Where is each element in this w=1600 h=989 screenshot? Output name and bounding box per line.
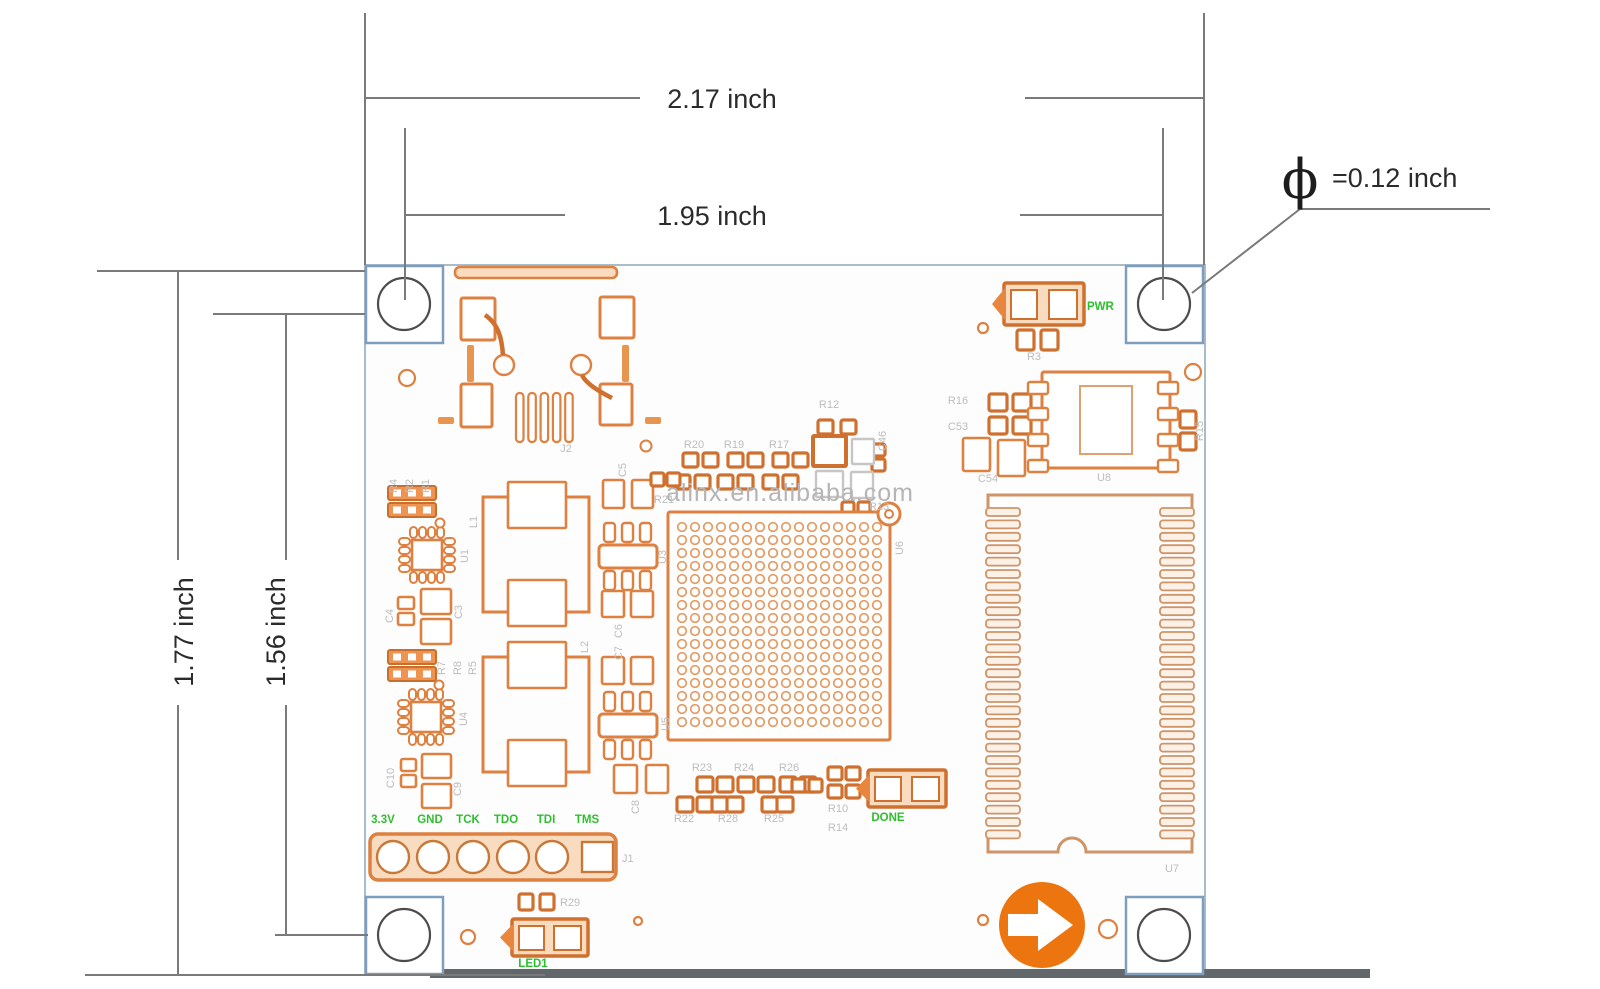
refdes-r12: R12 <box>819 399 839 411</box>
refdes-l2: L2 <box>579 641 591 653</box>
refdes-r16: R16 <box>948 395 968 407</box>
refdes-u6: U6 <box>894 541 906 555</box>
mounting-hole-2 <box>1126 266 1203 343</box>
pcb-dimension-drawing: alinx.en.alibaba.com 2.17 inch 1.95 inch… <box>0 0 1600 989</box>
refdes-c46: C46 <box>877 431 889 451</box>
refdes-r26: R26 <box>779 762 799 774</box>
refdes-l1: L1 <box>468 516 480 528</box>
refdes-u8: U8 <box>1097 472 1111 484</box>
mounting-hole-4 <box>1126 897 1203 974</box>
refdes-r5: R5 <box>467 661 479 675</box>
hole-diameter-value: =0.12 inch <box>1332 163 1457 193</box>
refdes-u7: U7 <box>1165 863 1179 875</box>
refdes-r19: R19 <box>724 439 744 451</box>
refdes-r3: R3 <box>1027 351 1041 363</box>
signal-label-pwr: PWR <box>1087 301 1115 313</box>
refdes-j1: J1 <box>622 853 634 865</box>
dim-height-outer: 1.77 inch <box>169 577 199 687</box>
drawing-canvas: alinx.en.alibaba.com 2.17 inch 1.95 inch… <box>0 0 1600 989</box>
arrow-logo <box>999 882 1085 968</box>
refdes-u1: U1 <box>459 549 471 563</box>
refdes-r15: R15 <box>1194 421 1206 441</box>
refdes-c5: C5 <box>617 463 629 477</box>
dim-width-outer: 2.17 inch <box>667 84 777 114</box>
mounting-hole-3 <box>366 897 443 974</box>
refdes-r29: R29 <box>560 897 580 909</box>
refdes-r4: R4 <box>388 479 400 493</box>
jtag-pin-label-1: GND <box>417 814 443 826</box>
refdes-c4: C4 <box>384 609 396 623</box>
refdes-c3: C3 <box>453 605 465 619</box>
dim-width-inner: 1.95 inch <box>657 201 767 231</box>
refdes-r2: R2 <box>404 479 416 493</box>
refdes-r23: R23 <box>692 762 712 774</box>
refdes-c10: C10 <box>385 768 397 788</box>
refdes-r25: R25 <box>764 813 784 825</box>
refdes-c8: C8 <box>630 800 642 814</box>
jtag-pin-label-4: TDI <box>537 814 556 826</box>
jtag-pin-label-2: TCK <box>456 814 480 826</box>
regulator-u3 <box>599 523 657 590</box>
refdes-r22: R22 <box>674 813 694 825</box>
refdes-u3: U3 <box>657 550 669 564</box>
jtag-pin-label-0: 3.3V <box>371 814 395 826</box>
refdes-r7: R7 <box>436 661 448 675</box>
hole-diameter-symbol: ϕ <box>1282 148 1319 211</box>
refdes-r17: R17 <box>769 439 789 451</box>
refdes-j2: J2 <box>560 443 572 455</box>
jtag-header-j1 <box>370 834 616 880</box>
refdes-r28: R28 <box>718 813 738 825</box>
regulator-u5 <box>599 692 657 759</box>
done-led <box>856 770 946 807</box>
refdes-r8: R8 <box>452 661 464 675</box>
signal-label-done: DONE <box>871 812 905 824</box>
board-bottom-shadow <box>430 969 1370 978</box>
refdes-c7: C7 <box>613 646 625 660</box>
refdes-r14: R14 <box>828 822 848 834</box>
refdes-c6: C6 <box>613 624 625 638</box>
jtag-pin-label-5: TMS <box>575 814 600 826</box>
signal-label-led1: LED1 <box>518 958 548 970</box>
refdes-r24: R24 <box>734 762 754 774</box>
refdes-r21: R21 <box>654 494 674 506</box>
led1 <box>500 919 588 956</box>
dim-height-inner: 1.56 inch <box>261 577 291 687</box>
refdes-c54: C54 <box>978 473 998 485</box>
pwr-led <box>992 283 1084 325</box>
refdes-r1: R1 <box>420 479 432 493</box>
refdes-c53: C53 <box>948 421 968 433</box>
refdes-c9: C9 <box>452 782 464 796</box>
refdes-r20: R20 <box>684 439 704 451</box>
refdes-u5: U5 <box>660 717 672 731</box>
refdes-r10: R10 <box>828 803 848 815</box>
refdes-r13: R13 <box>869 501 889 513</box>
refdes-u4: U4 <box>458 712 470 726</box>
bga-chip-u6 <box>668 503 900 740</box>
jtag-pin-label-3: TDO <box>494 814 518 826</box>
